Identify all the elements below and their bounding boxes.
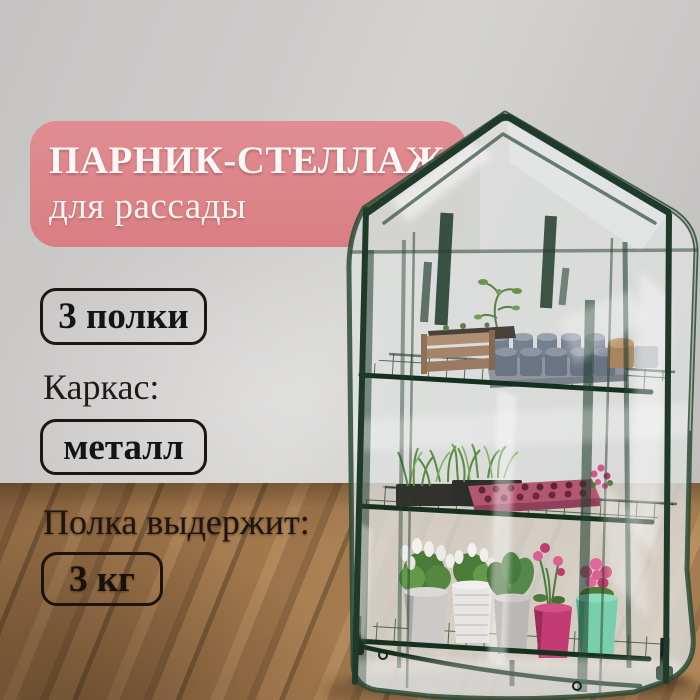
greenhouse-illustration <box>0 0 700 700</box>
product-card: ПАРНИК-СТЕЛЛАЖ для рассады 3 полки Карка… <box>0 0 700 700</box>
